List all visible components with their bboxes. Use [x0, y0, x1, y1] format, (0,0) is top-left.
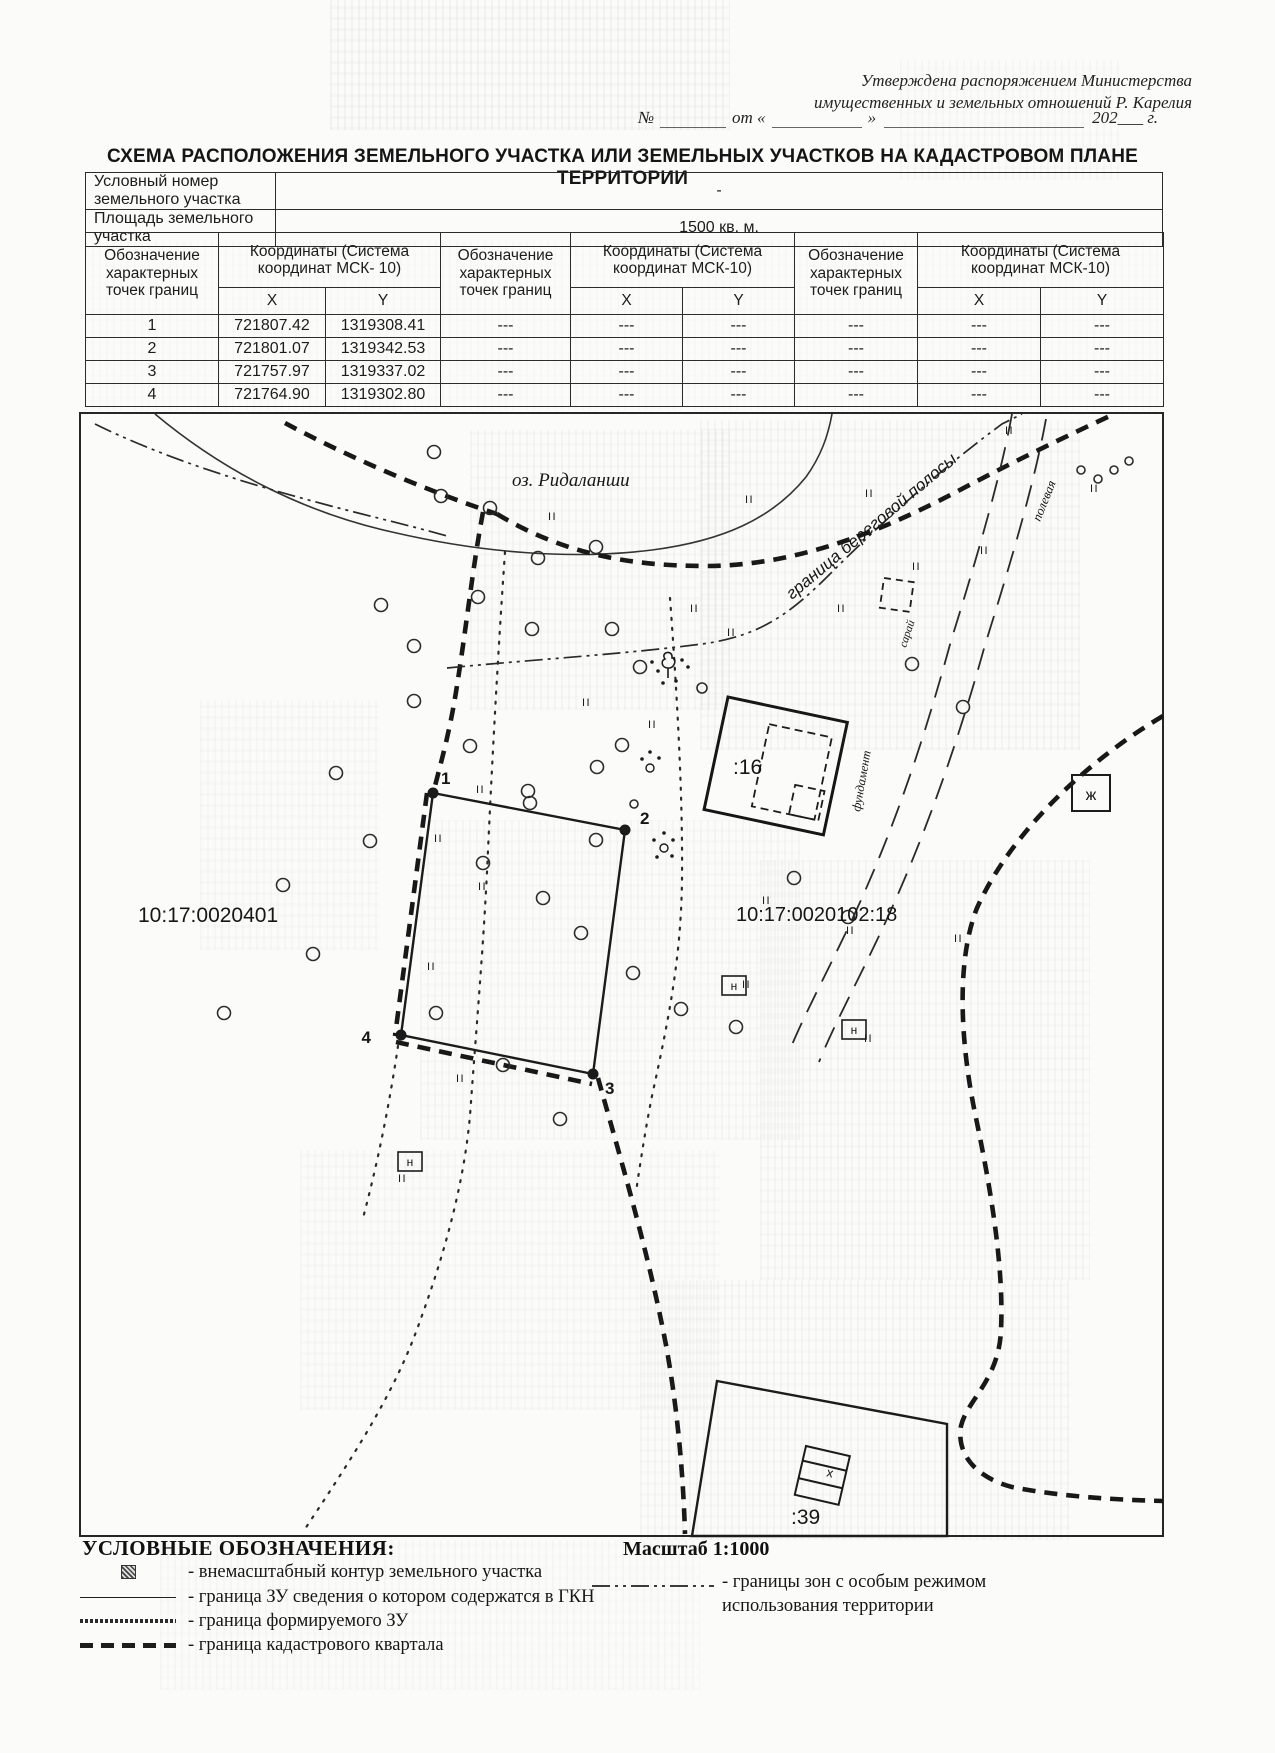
table-row: 2 721801.07 1319342.53 --- --- --- --- -… — [86, 338, 1164, 361]
y-value: 1319342.53 — [326, 338, 441, 361]
grass-mark: II — [582, 697, 591, 709]
scanned-document-page: Утверждена распоряжением Министерства им… — [0, 0, 1275, 1753]
empty-cell: --- — [441, 338, 571, 361]
grass-mark: II — [690, 603, 699, 615]
empty-cell: --- — [918, 384, 1041, 407]
gkn-boundary-symbol — [78, 1597, 178, 1598]
x-value: 721807.42 — [219, 315, 326, 338]
grass-mark: II — [865, 488, 874, 500]
empty-cell: --- — [441, 384, 571, 407]
grass-mark: II — [954, 933, 963, 945]
dash-dot-line-icon — [592, 1584, 714, 1588]
empty-cell: --- — [918, 315, 1041, 338]
shed-outline — [880, 578, 914, 612]
legend-item-label: - граница формируемого ЗУ — [178, 1611, 408, 1632]
tree-symbol — [650, 652, 690, 684]
n-marker: н — [731, 979, 738, 993]
point-label-4: 4 — [362, 1028, 372, 1047]
table-subheader-row: X Y X Y X Y — [86, 288, 1164, 315]
grass-mark: II — [548, 511, 557, 523]
footpath-dotted-trails — [303, 552, 682, 1532]
shed-label: сарай — [896, 618, 917, 649]
grass-mark: II — [648, 719, 657, 731]
marker-boxes — [398, 775, 1110, 1171]
outline-contour-symbol — [78, 1565, 178, 1579]
table-row: 4 721764.90 1319302.80 --- --- --- --- -… — [86, 384, 1164, 407]
point-label-1: 1 — [441, 769, 450, 788]
foundation-label: фундамент — [849, 749, 873, 812]
empty-cell: --- — [1041, 315, 1164, 338]
x-value: 721757.97 — [219, 361, 326, 384]
parcel-39-label: :39 — [791, 1506, 820, 1529]
grass-mark: II — [980, 545, 989, 557]
empty-cell: --- — [1041, 384, 1164, 407]
field-road-lines — [789, 414, 1046, 1062]
point-label-3: 3 — [605, 1079, 614, 1098]
grass-mark: II — [478, 881, 487, 893]
zone-legend-line-2: использования территории — [722, 1594, 986, 1618]
grass-mark: II — [1005, 425, 1014, 437]
n-marker: н — [407, 1155, 414, 1169]
empty-cell: --- — [441, 315, 571, 338]
empty-cell: --- — [795, 361, 918, 384]
empty-cell: --- — [918, 338, 1041, 361]
legend-item-label: - внемасштабный контур земельного участк… — [178, 1562, 542, 1583]
dashed-line-icon — [80, 1643, 176, 1648]
zh-marker: ж — [1086, 787, 1097, 804]
formed-parcel-symbol — [78, 1619, 178, 1623]
grass-mark: II — [476, 784, 485, 796]
designation-header: Обозначение характерных точек границ — [441, 233, 571, 315]
table-row: Условный номер земельного участка - — [86, 173, 1163, 210]
legend-item: - граница кадастрового квартала — [78, 1633, 698, 1657]
grass-mark: II — [727, 627, 736, 639]
empty-cell: --- — [571, 338, 683, 361]
empty-cell: --- — [571, 361, 683, 384]
empty-cell: --- — [1041, 338, 1164, 361]
point-number: 1 — [86, 315, 219, 338]
empty-cell: --- — [795, 315, 918, 338]
table-header-row: Обозначение характерных точек границ Коо… — [86, 233, 1164, 288]
empty-cell: --- — [571, 315, 683, 338]
designation-header: Обозначение характерных точек границ — [795, 233, 918, 315]
x-value: 721764.90 — [219, 384, 326, 407]
grass-mark: II — [837, 603, 846, 615]
grass-mark: II — [427, 961, 436, 973]
grass-mark: II — [1090, 483, 1099, 495]
grass-mark: II — [434, 833, 443, 845]
y-header: Y — [1041, 288, 1164, 315]
zone-legend-text: - границы зон с особым режимом использов… — [722, 1570, 986, 1618]
x-header: X — [571, 288, 683, 315]
empty-cell: --- — [441, 361, 571, 384]
hatch-square-icon — [121, 1565, 136, 1579]
point-number: 4 — [86, 384, 219, 407]
lake-shoreline — [155, 414, 832, 554]
table-row: 1 721807.42 1319308.41 --- --- --- --- -… — [86, 315, 1164, 338]
tree-markers — [218, 446, 1134, 1126]
x-value: 721801.07 — [219, 338, 326, 361]
lake-label: оз. Ридаланши — [512, 470, 630, 491]
solid-line-icon — [80, 1597, 176, 1598]
field-road-label: полевая — [1029, 478, 1059, 523]
parcel-16-label: :16 — [733, 756, 762, 779]
y-header: Y — [683, 288, 795, 315]
grass-mark: II — [398, 1173, 407, 1185]
n-marker: н — [851, 1023, 858, 1037]
coords-header: Координаты (Система координат МСК- 10) — [219, 233, 441, 288]
coordinates-table: Обозначение характерных точек границ Коо… — [85, 232, 1164, 407]
grass-mark: II — [456, 1073, 465, 1085]
parcel-vertex-labels: 1 2 3 4 — [362, 769, 650, 1098]
legend-item-label: - граница ЗУ сведения о котором содержат… — [178, 1587, 595, 1608]
dot-cluster — [640, 750, 675, 859]
quarter-boundary-symbol — [78, 1643, 178, 1648]
cadastral-quarter-number-left: 10:17:0020401 — [138, 904, 278, 927]
cadastral-quarter-number-right: 10:17:0020102:18 — [736, 904, 897, 926]
empty-cell: --- — [795, 338, 918, 361]
x-header: X — [219, 288, 326, 315]
legend-item-label: - граница кадастрового квартала — [178, 1635, 444, 1656]
legend-item: - внемасштабный контур земельного участк… — [78, 1560, 698, 1584]
y-value: 1319302.80 — [326, 384, 441, 407]
empty-cell: --- — [571, 384, 683, 407]
grass-mark: II — [846, 925, 855, 937]
empty-cell: --- — [683, 338, 795, 361]
empty-cell: --- — [683, 384, 795, 407]
grass-mark: II — [745, 494, 754, 506]
y-value: 1319337.02 — [326, 361, 441, 384]
point-number: 2 — [86, 338, 219, 361]
y-header: Y — [326, 288, 441, 315]
empty-cell: --- — [795, 384, 918, 407]
cadastral-quarter-boundary — [285, 415, 1163, 1534]
empty-cell: --- — [918, 361, 1041, 384]
table-row: 3 721757.97 1319337.02 --- --- --- --- -… — [86, 361, 1164, 384]
designation-header: Обозначение характерных точек границ — [86, 233, 219, 315]
legend-item: - граница ЗУ сведения о котором содержат… — [78, 1585, 698, 1609]
map-frame — [80, 413, 1163, 1536]
y-value: 1319308.41 — [326, 315, 441, 338]
coords-header: Координаты (Система координат МСК-10) — [918, 233, 1164, 288]
parcel-16 — [704, 697, 847, 835]
x-header: X — [918, 288, 1041, 315]
empty-cell: --- — [683, 361, 795, 384]
coords-header: Координаты (Система координат МСК-10) — [571, 233, 795, 288]
empty-cell: --- — [1041, 361, 1164, 384]
point-label-2: 2 — [640, 809, 649, 828]
grass-mark: II — [912, 561, 921, 573]
point-number: 3 — [86, 361, 219, 384]
zone-legend-line-1: - границы зон с особым режимом — [722, 1570, 986, 1594]
hatched-line-icon — [80, 1619, 176, 1623]
conditional-number-value: - — [276, 173, 1163, 210]
empty-cell: --- — [683, 315, 795, 338]
legend-item: - граница формируемого ЗУ — [78, 1609, 698, 1633]
conditional-number-label: Условный номер земельного участка — [86, 173, 276, 210]
building-39 — [795, 1446, 850, 1505]
parcel-vertex-points — [396, 788, 631, 1080]
